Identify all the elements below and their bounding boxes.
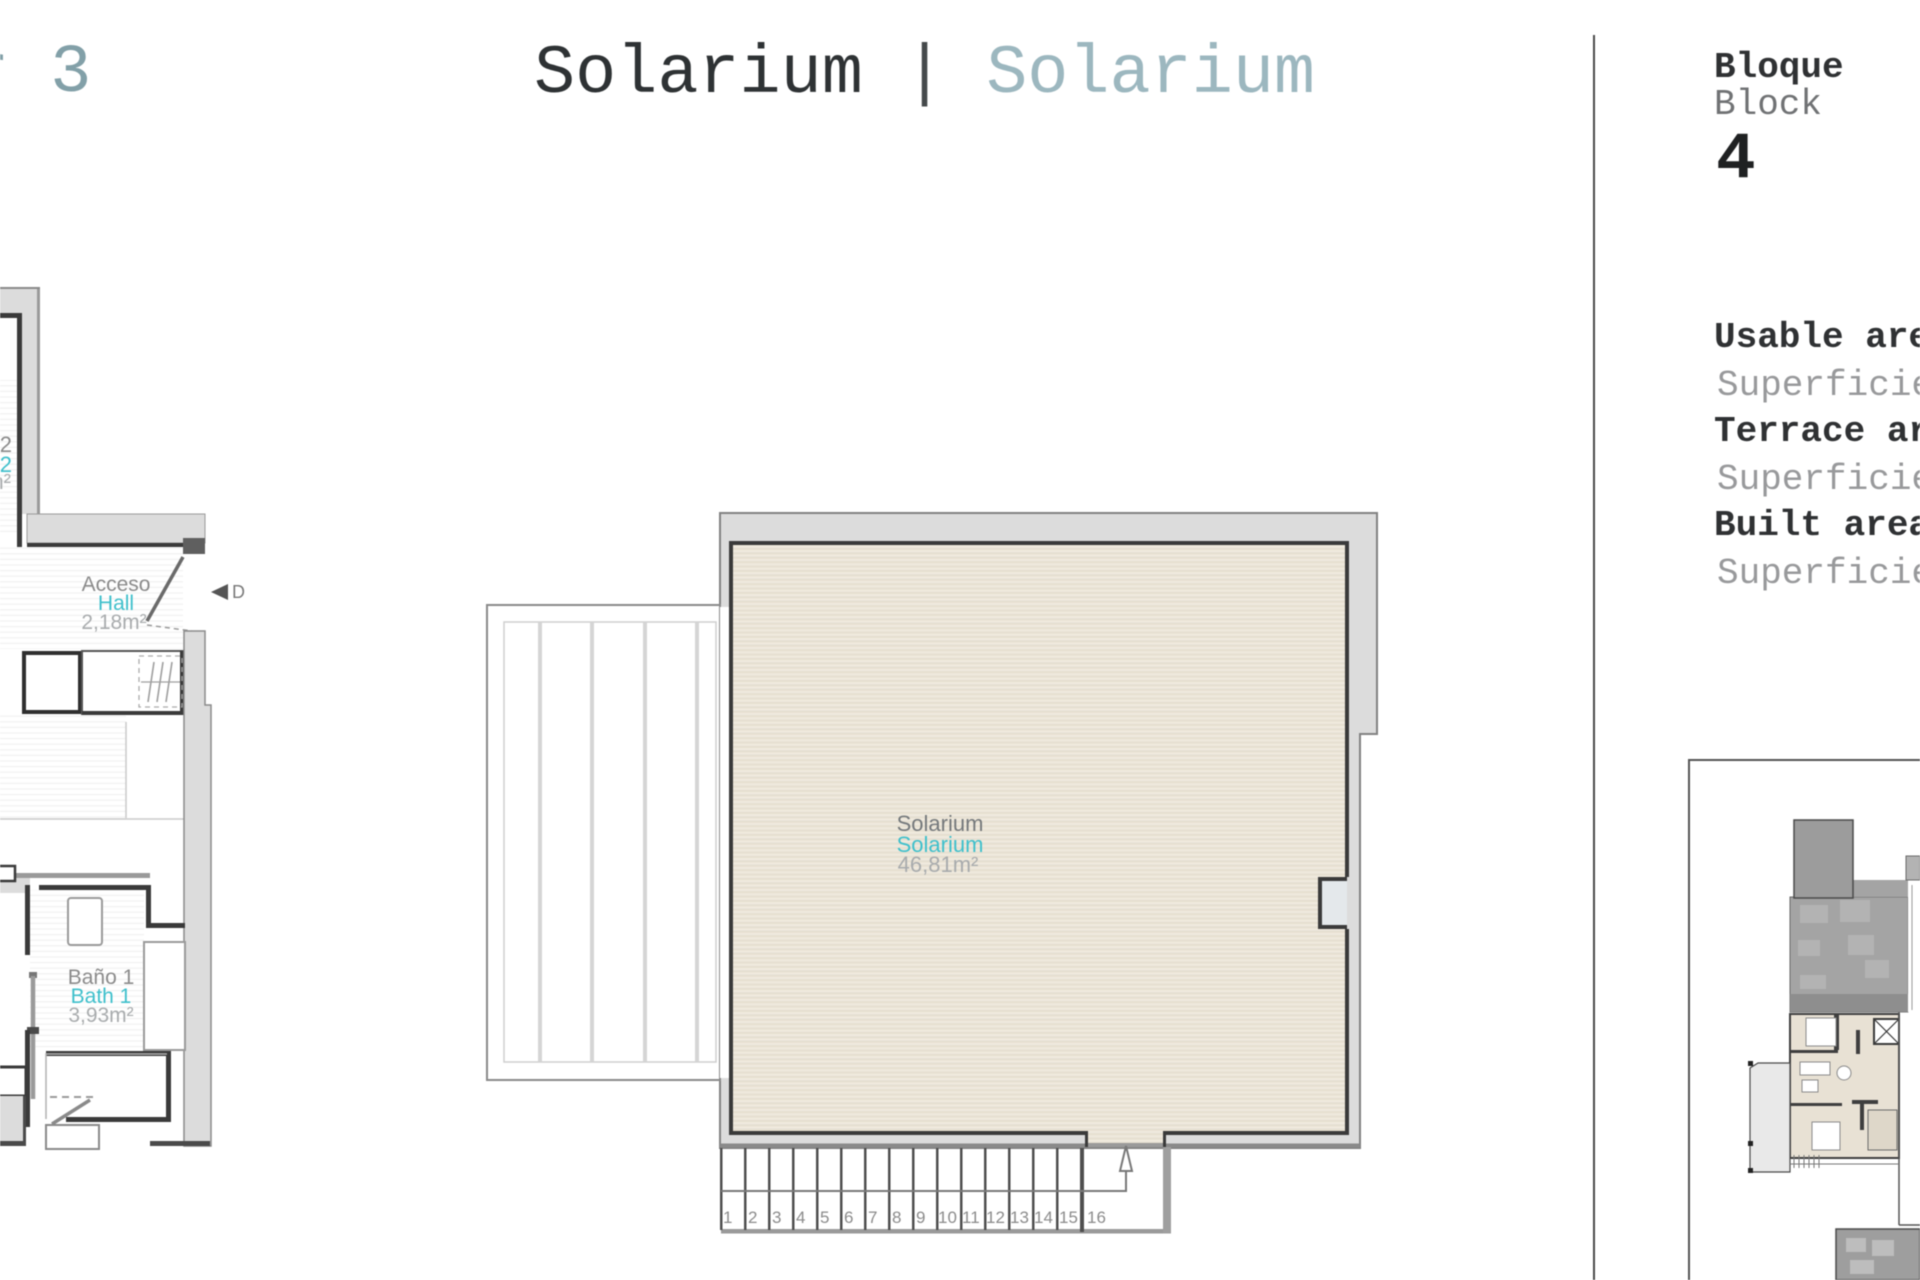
svg-text:Usable area: Usable area bbox=[1714, 317, 1920, 358]
svg-text:Terrace area: Terrace area bbox=[1714, 411, 1920, 452]
svg-text:15: 15 bbox=[1059, 1208, 1078, 1227]
svg-text:9: 9 bbox=[916, 1208, 925, 1227]
svg-text:Block: Block bbox=[1714, 84, 1822, 125]
svg-text:Superficie construida: Superficie construida bbox=[1717, 553, 1920, 594]
svg-text:3,93m²: 3,93m² bbox=[68, 1004, 133, 1027]
svg-text:6: 6 bbox=[844, 1208, 853, 1227]
svg-text:8: 8 bbox=[892, 1208, 901, 1227]
svg-text:Built area: Built area bbox=[1714, 505, 1920, 546]
svg-text:10: 10 bbox=[938, 1208, 957, 1227]
svg-text:13: 13 bbox=[1010, 1208, 1029, 1227]
svg-text:4: 4 bbox=[796, 1208, 805, 1227]
svg-text:2,18m²: 2,18m² bbox=[81, 611, 146, 634]
svg-text:11: 11 bbox=[962, 1208, 980, 1227]
svg-text:12: 12 bbox=[986, 1208, 1005, 1227]
svg-text:1: 1 bbox=[723, 1208, 732, 1227]
svg-text:D: D bbox=[232, 582, 245, 602]
svg-text:2: 2 bbox=[748, 1208, 757, 1227]
svg-text:Bloque: Bloque bbox=[1714, 47, 1844, 88]
svg-text:46,81m²: 46,81m² bbox=[898, 852, 979, 877]
svg-text:14: 14 bbox=[1034, 1208, 1053, 1227]
svg-text:3: 3 bbox=[772, 1208, 781, 1227]
svg-text:5: 5 bbox=[820, 1208, 829, 1227]
svg-text:16: 16 bbox=[1087, 1208, 1106, 1227]
svg-text:m²: m² bbox=[0, 469, 11, 494]
svg-text:r 3: r 3 bbox=[0, 34, 91, 112]
svg-text:7: 7 bbox=[868, 1208, 877, 1227]
svg-text:Superficie útil: Superficie útil bbox=[1717, 365, 1920, 406]
svg-text:Superficie terraza: Superficie terraza bbox=[1717, 459, 1920, 500]
svg-text:4: 4 bbox=[1716, 122, 1756, 197]
svg-text:Solarium | Solarium: Solarium | Solarium bbox=[534, 35, 1315, 113]
